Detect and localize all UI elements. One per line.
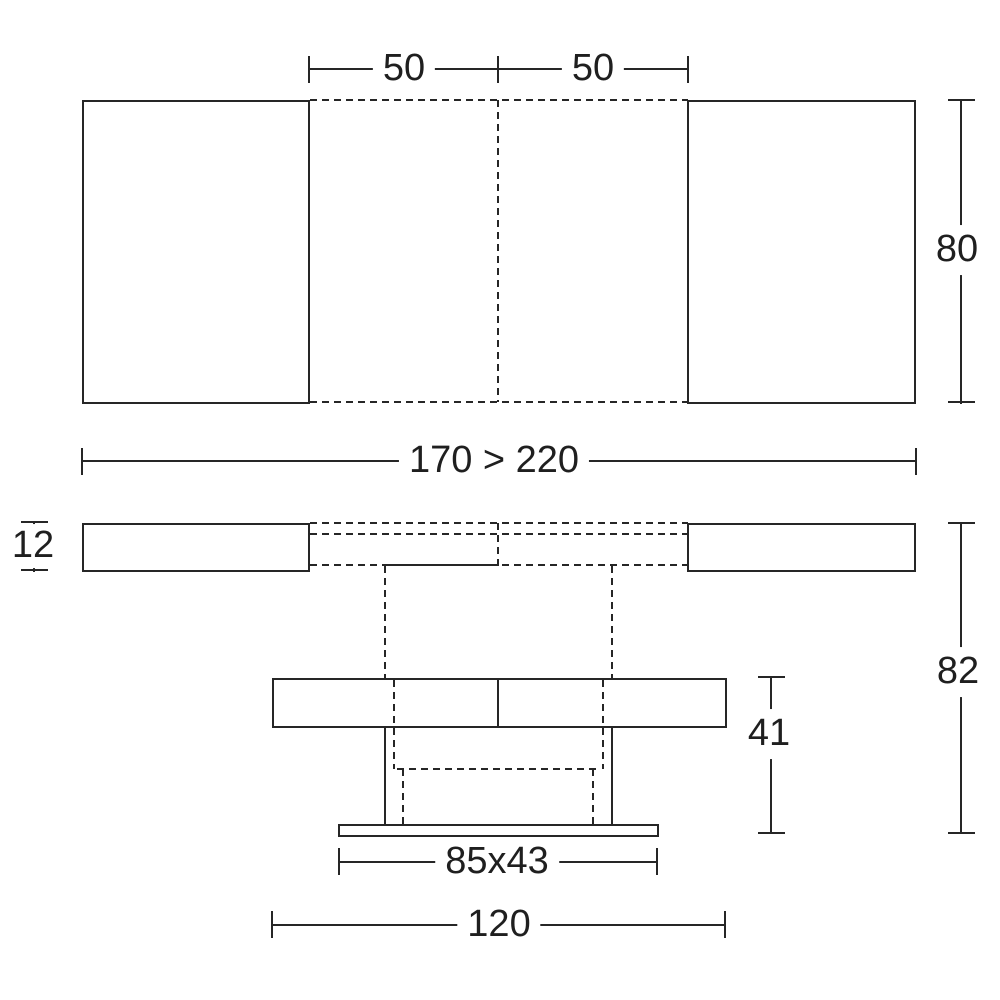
leaf-dimension-tick-center [497, 56, 499, 83]
side-view-extension-top-edge [310, 522, 688, 524]
dim-label-width-range: 170 > 220 [399, 439, 589, 483]
column-hidden-left-edge [384, 566, 386, 678]
top-view-extension-top-edge [310, 99, 688, 101]
side-view-leaf-upper-edge [310, 533, 688, 535]
top-view-right-panel [687, 100, 916, 404]
base-height-tick-bottom [758, 832, 785, 834]
box-width-tick-left [271, 911, 273, 938]
side-view-left-top-panel [82, 523, 310, 572]
side-view-leaf-lower-edge [310, 564, 688, 566]
dim-label-base-footprint: 85x43 [435, 840, 559, 884]
total-height-tick-bottom [948, 832, 975, 834]
top-view-extension-center-line [497, 100, 499, 402]
mechanism-lower-right-edge [592, 769, 594, 824]
top-thickness-tick-bottom [21, 569, 48, 571]
mechanism-lower-left-edge [402, 769, 404, 824]
box-width-tick-right [724, 911, 726, 938]
leaf-dimension-tick-left [308, 56, 310, 83]
depth-dimension-tick-bottom [948, 401, 975, 403]
width-range-tick-left [81, 448, 83, 475]
dim-label-box-width: 120 [457, 903, 540, 947]
leaf-storage-box-divider [497, 678, 499, 728]
depth-dimension-tick-top [948, 99, 975, 101]
dim-label-total-height: 82 [933, 647, 983, 697]
mechanism-shoulder-edge [397, 768, 600, 770]
dim-label-leaf-left: 50 [373, 47, 435, 91]
top-view-left-panel [82, 100, 310, 404]
width-range-tick-right [915, 448, 917, 475]
mechanism-upper-right-edge [602, 680, 604, 769]
furniture-dimension-diagram: 50 50 80 170 > 220 12 41 [0, 0, 1000, 1000]
leaf-storage-box [272, 678, 727, 728]
top-view-extension-bottom-edge [310, 401, 688, 403]
column-left-side [384, 728, 386, 824]
dim-label-base-height: 41 [744, 709, 794, 759]
column-hidden-right-edge [611, 566, 613, 678]
base-footprint-tick-right [656, 848, 658, 875]
base-footprint-tick-left [338, 848, 340, 875]
mechanism-upper-left-edge [393, 680, 395, 769]
dim-label-depth: 80 [932, 225, 982, 275]
side-view-column-top-edge [384, 564, 499, 566]
top-thickness-tick-top [21, 521, 48, 523]
leaf-dimension-tick-right [687, 56, 689, 83]
leaf-dimension-line [309, 68, 689, 70]
side-view-extension-center-line [497, 523, 499, 565]
side-view-right-top-panel [687, 523, 916, 572]
column-right-side [611, 728, 613, 824]
total-height-tick-top [948, 522, 975, 524]
base-plate [338, 824, 659, 837]
dim-label-top-thickness: 12 [10, 524, 56, 568]
dim-label-leaf-right: 50 [562, 47, 624, 91]
base-height-tick-top [758, 676, 785, 678]
